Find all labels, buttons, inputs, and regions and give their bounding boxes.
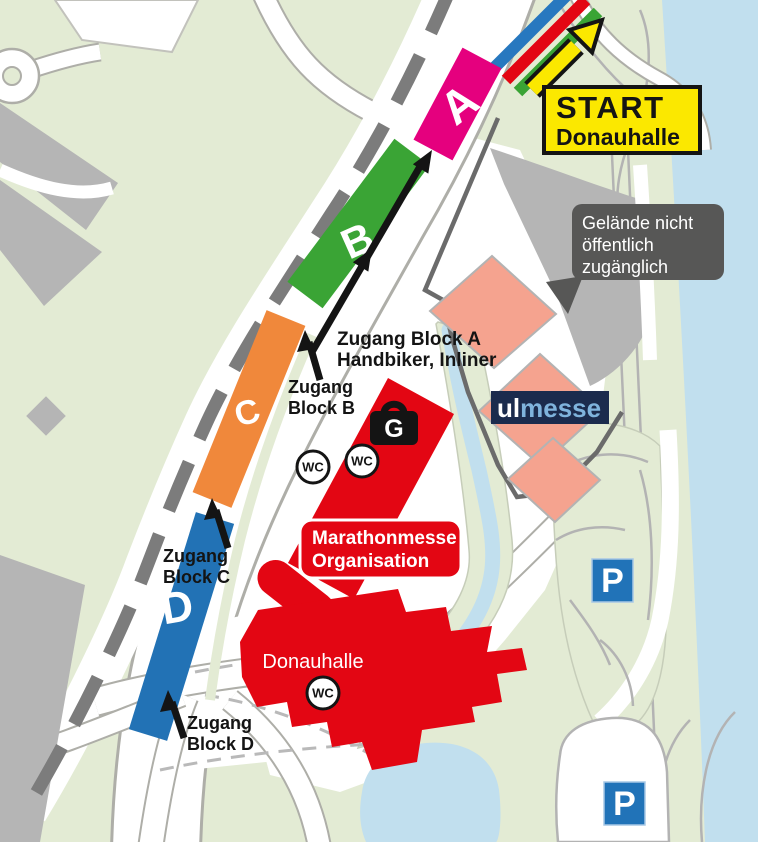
organisation-line-1: Marathonmesse <box>312 528 457 549</box>
ulmesse-logo-part1: ul <box>497 393 520 423</box>
parking-icon-label: P <box>601 562 624 600</box>
zugang-c-line-2: Block C <box>163 567 230 587</box>
ulmesse-logo-text: ulmesse <box>497 393 601 423</box>
roundabout-island <box>3 67 21 85</box>
zugang-a-line-2: Handbiker, Inliner <box>337 350 497 371</box>
start-sign-subtitle: Donauhalle <box>556 124 680 150</box>
map-canvas: A B C D WC WC WC G P <box>0 0 758 842</box>
zugang-d-line-2: Block D <box>187 734 254 754</box>
zugang-b-line-2: Block B <box>288 398 355 418</box>
wc-icon-label: WC <box>302 460 324 475</box>
zugang-c-line-1: Zugang <box>163 546 228 566</box>
notice-line-1: Gelände nicht <box>582 213 693 233</box>
notice-line-2: öffentlich <box>582 235 654 255</box>
organisation-label: Marathonmesse Organisation <box>300 520 461 578</box>
donauhalle-label: Donauhalle <box>262 651 363 673</box>
notice-line-3: zugänglich <box>582 257 668 277</box>
start-sign: START Donauhalle <box>544 87 700 153</box>
zugang-b-line-1: Zugang <box>288 377 353 397</box>
zugang-d-line-1: Zugang <box>187 713 252 733</box>
marathon-start-area-map: A B C D WC WC WC G P <box>0 0 758 842</box>
organisation-line-2: Organisation <box>312 551 429 572</box>
ulmesse-logo-part2: messe <box>520 393 601 423</box>
parking-icon-label: P <box>613 785 636 823</box>
ulmesse-logo: ulmesse <box>491 391 609 424</box>
wc-icon-label: WC <box>351 454 373 469</box>
zugang-a-line-1: Zugang Block A <box>337 329 481 350</box>
luggage-icon-label: G <box>384 415 403 443</box>
wc-icon-label: WC <box>312 686 334 701</box>
start-sign-title: START <box>556 90 665 125</box>
